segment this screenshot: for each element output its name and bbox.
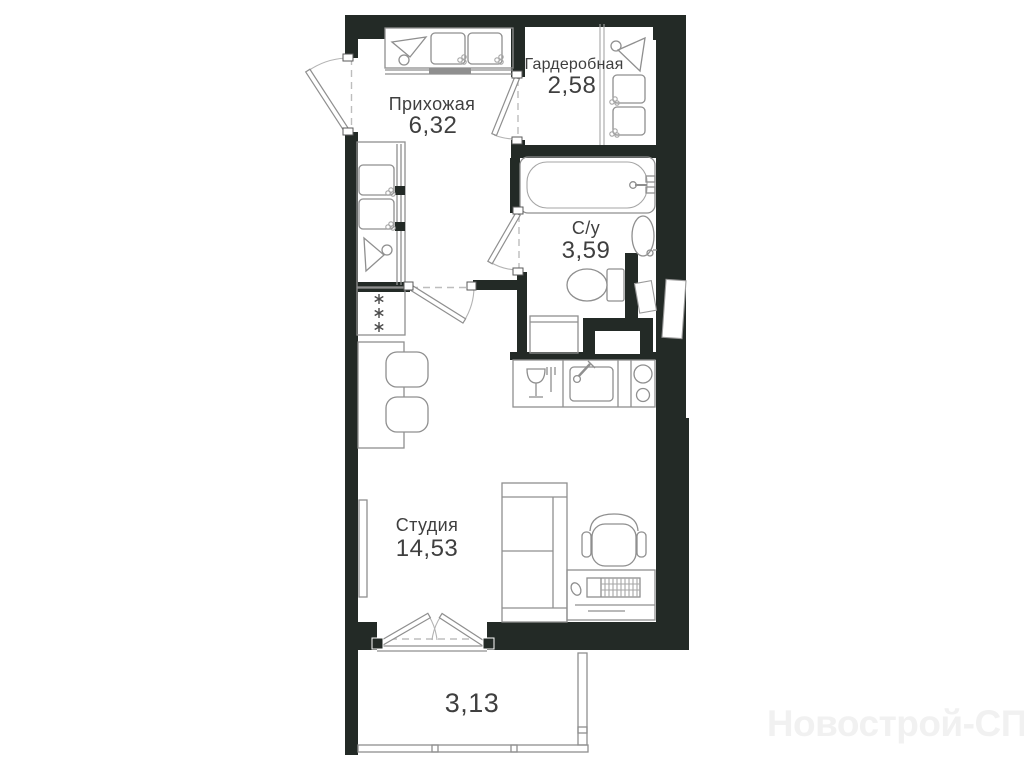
kitchen-counter: [513, 360, 655, 407]
storage-box-icon: [610, 75, 645, 105]
washing-machine-icon: [530, 316, 578, 353]
balcony-door: [372, 613, 494, 651]
kitchen-sink-icon: [570, 361, 613, 401]
bathtub-icon: [520, 157, 655, 213]
fridge-icon: [357, 288, 405, 335]
storage-box-icon: [610, 107, 645, 137]
room-area-studio: 14,53: [396, 535, 459, 562]
toilet-icon: [567, 269, 624, 301]
hallway-top-shelf: [385, 28, 513, 74]
entrance-door: [306, 54, 353, 135]
watermark: Новострой-СПб: [767, 703, 1024, 744]
washbasin-icon: [632, 216, 657, 256]
dishwasher-icon: [527, 367, 555, 397]
room-label-hallway: Прихожая: [389, 94, 476, 114]
storage-box-icon: [431, 33, 466, 64]
room-label-bathroom: С/у: [572, 218, 600, 238]
bathroom-door: [488, 207, 523, 275]
wardrobe-room-fittings: [600, 24, 645, 145]
room-label-wardrobe: Гардеробная: [525, 56, 624, 73]
storage-box-icon: [359, 199, 395, 230]
wardrobe-door: [492, 71, 522, 144]
chair-icon: [386, 397, 428, 432]
room-label-studio: Студия: [396, 515, 459, 535]
studio-door: [404, 282, 476, 323]
floor-plan: Прихожая 6,32 Гардеробная 2,58 С/у 3,59 …: [0, 0, 1024, 768]
mouse-icon: [569, 581, 583, 597]
hanger-icon: [392, 37, 426, 65]
keyboard-icon: [587, 578, 640, 597]
hallway-closet: [357, 142, 405, 287]
storage-box-icon: [468, 33, 503, 64]
storage-box-icon: [359, 165, 395, 196]
shelf-handle: [429, 68, 471, 74]
floor-plan-svg: Прихожая 6,32 Гардеробная 2,58 С/у 3,59 …: [0, 0, 1024, 768]
room-area-balcony: 3,13: [445, 688, 500, 718]
stove-icon: [634, 365, 652, 402]
chair-icon: [386, 352, 428, 387]
desk-icon: [567, 570, 655, 620]
room-area-hallway: 6,32: [409, 112, 458, 139]
room-area-wardrobe: 2,58: [548, 72, 597, 99]
bed-icon: [502, 483, 567, 622]
radiator-icon: [359, 500, 367, 597]
room-area-bathroom: 3,59: [562, 237, 611, 264]
office-chair-icon: [582, 514, 646, 566]
hanger-icon: [364, 238, 392, 271]
